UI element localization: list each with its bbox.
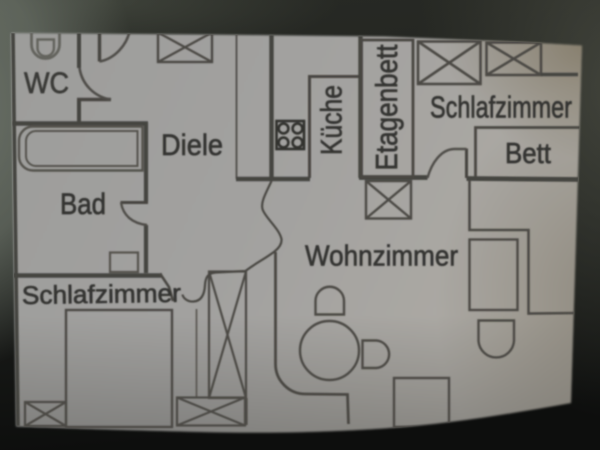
svg-text:Diele: Diele <box>161 129 223 162</box>
svg-text:Etagenbett: Etagenbett <box>370 44 404 170</box>
svg-text:Küche: Küche <box>316 85 349 155</box>
svg-text:WC: WC <box>24 67 69 100</box>
svg-text:Schlafzimmer: Schlafzimmer <box>430 90 572 125</box>
svg-text:Bad: Bad <box>60 188 106 221</box>
svg-text:Schlafzimmer: Schlafzimmer <box>22 280 182 310</box>
svg-text:Wohnzimmer: Wohnzimmer <box>305 241 458 273</box>
svg-text:Bett: Bett <box>505 138 551 170</box>
